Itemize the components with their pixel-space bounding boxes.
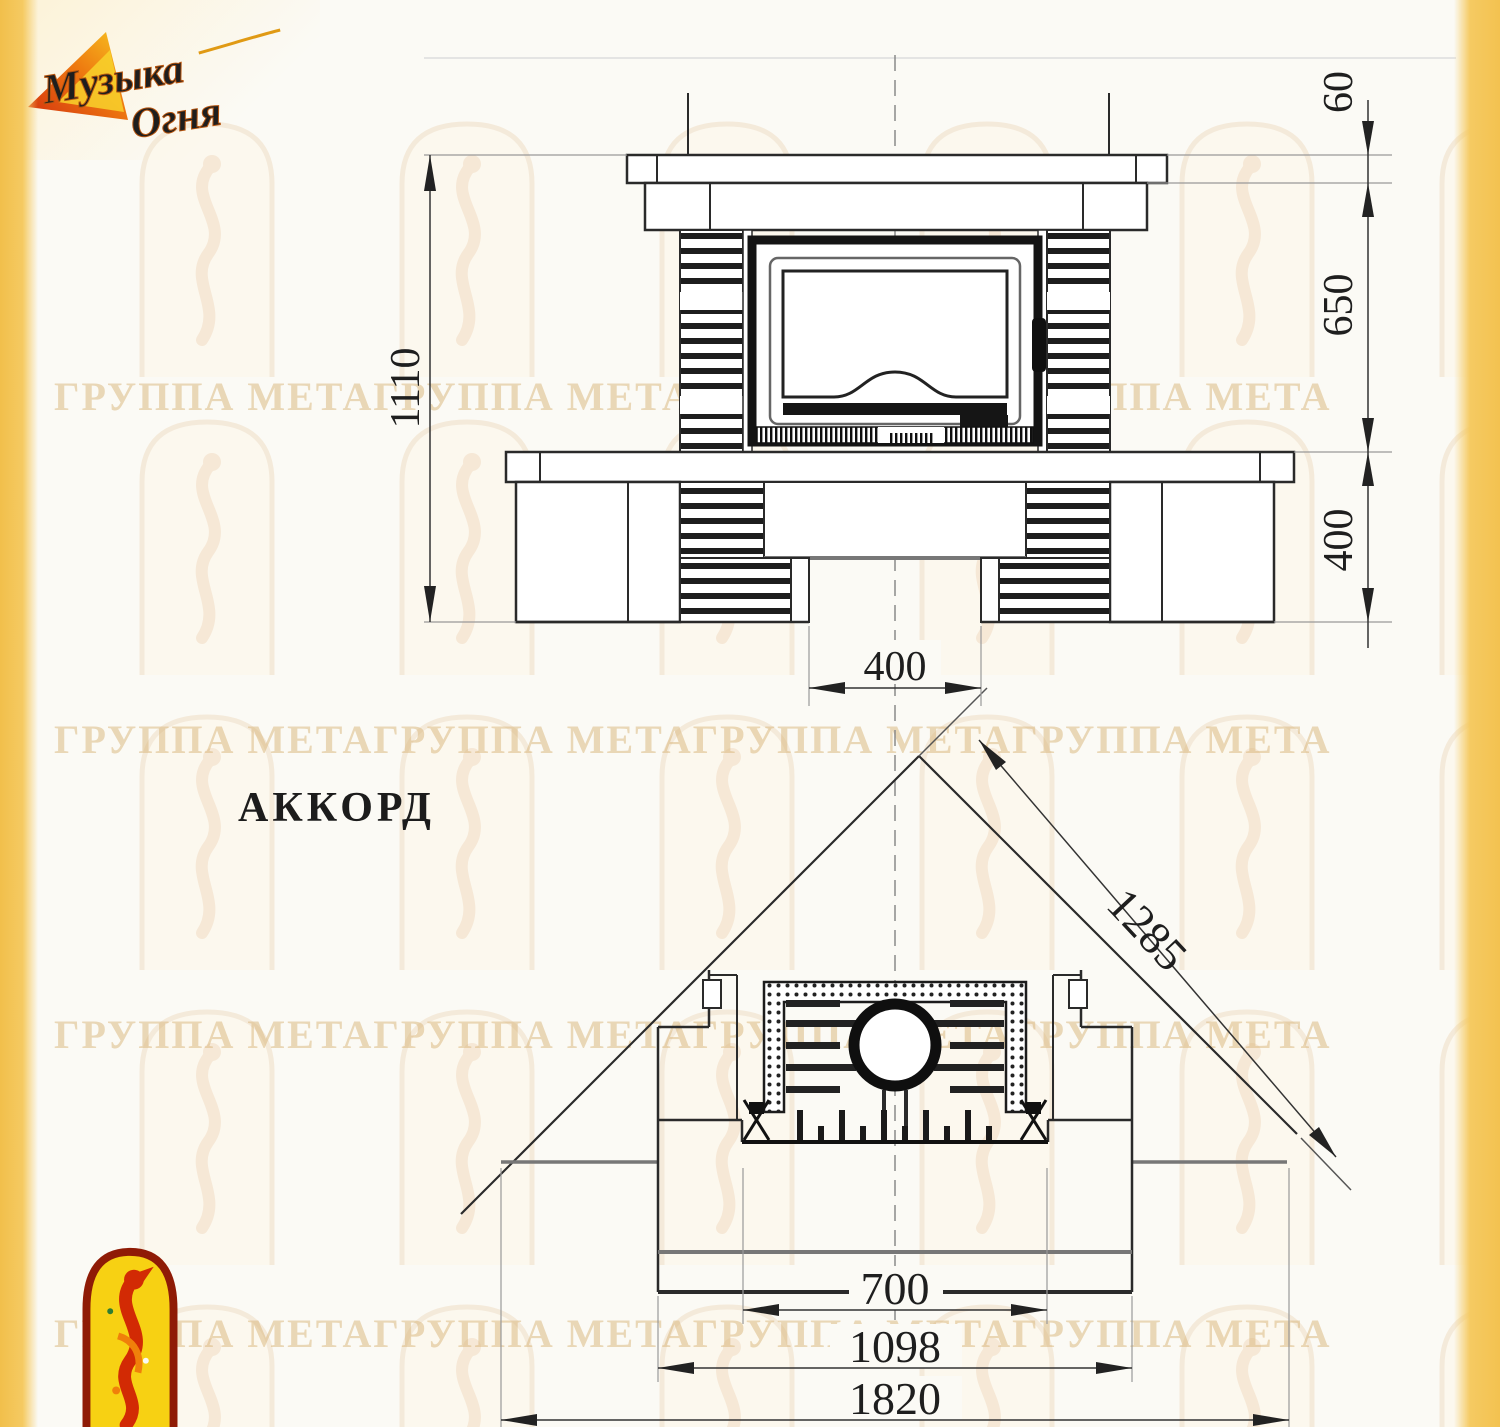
firebox-door [752, 240, 1046, 443]
dim-label-body-width: 1098 [849, 1321, 941, 1372]
dim-label-diagonal: 1285 [1097, 878, 1197, 980]
base-center-panel [764, 482, 1026, 558]
base-left-block [516, 482, 680, 622]
dim-label-shelf-thickness: 60 [1316, 71, 1362, 113]
flue-collar [854, 1004, 936, 1086]
hearth-shelf [506, 452, 1294, 482]
dim-label-base-recess: 400 [864, 644, 927, 690]
dim-label-overall-width: 1820 [849, 1373, 941, 1424]
gold-strip-left [0, 0, 38, 1427]
dim-label-firebox-width: 700 [861, 1263, 930, 1314]
gold-strip-right [1454, 0, 1500, 1427]
dim-label-total-height: 1110 [383, 348, 429, 429]
plan-view [461, 688, 1351, 1292]
technical-drawing: 1110 60 650 400 400 [0, 0, 1500, 1427]
right-pier-bricks [1047, 230, 1110, 452]
firebird-arch-logo [80, 1242, 180, 1427]
drawing-title: АККОРД [238, 784, 435, 832]
front-view [506, 93, 1294, 622]
dim-label-portal-height: 650 [1316, 274, 1362, 337]
brand-logo: Музыка Огня [6, 2, 306, 152]
frieze-band [645, 183, 1147, 230]
left-pier-bricks [680, 230, 743, 452]
mantel-shelf [627, 155, 1167, 183]
drawing-sheet: ГРУППА МЕТАГРУППА МЕТАГРУППА МЕТАГРУППА … [0, 0, 1500, 1427]
dim-label-base-height: 400 [1316, 509, 1362, 572]
base-right-block [1110, 482, 1274, 622]
door-handle [1032, 318, 1046, 372]
corner-wall-right [919, 756, 1297, 1134]
